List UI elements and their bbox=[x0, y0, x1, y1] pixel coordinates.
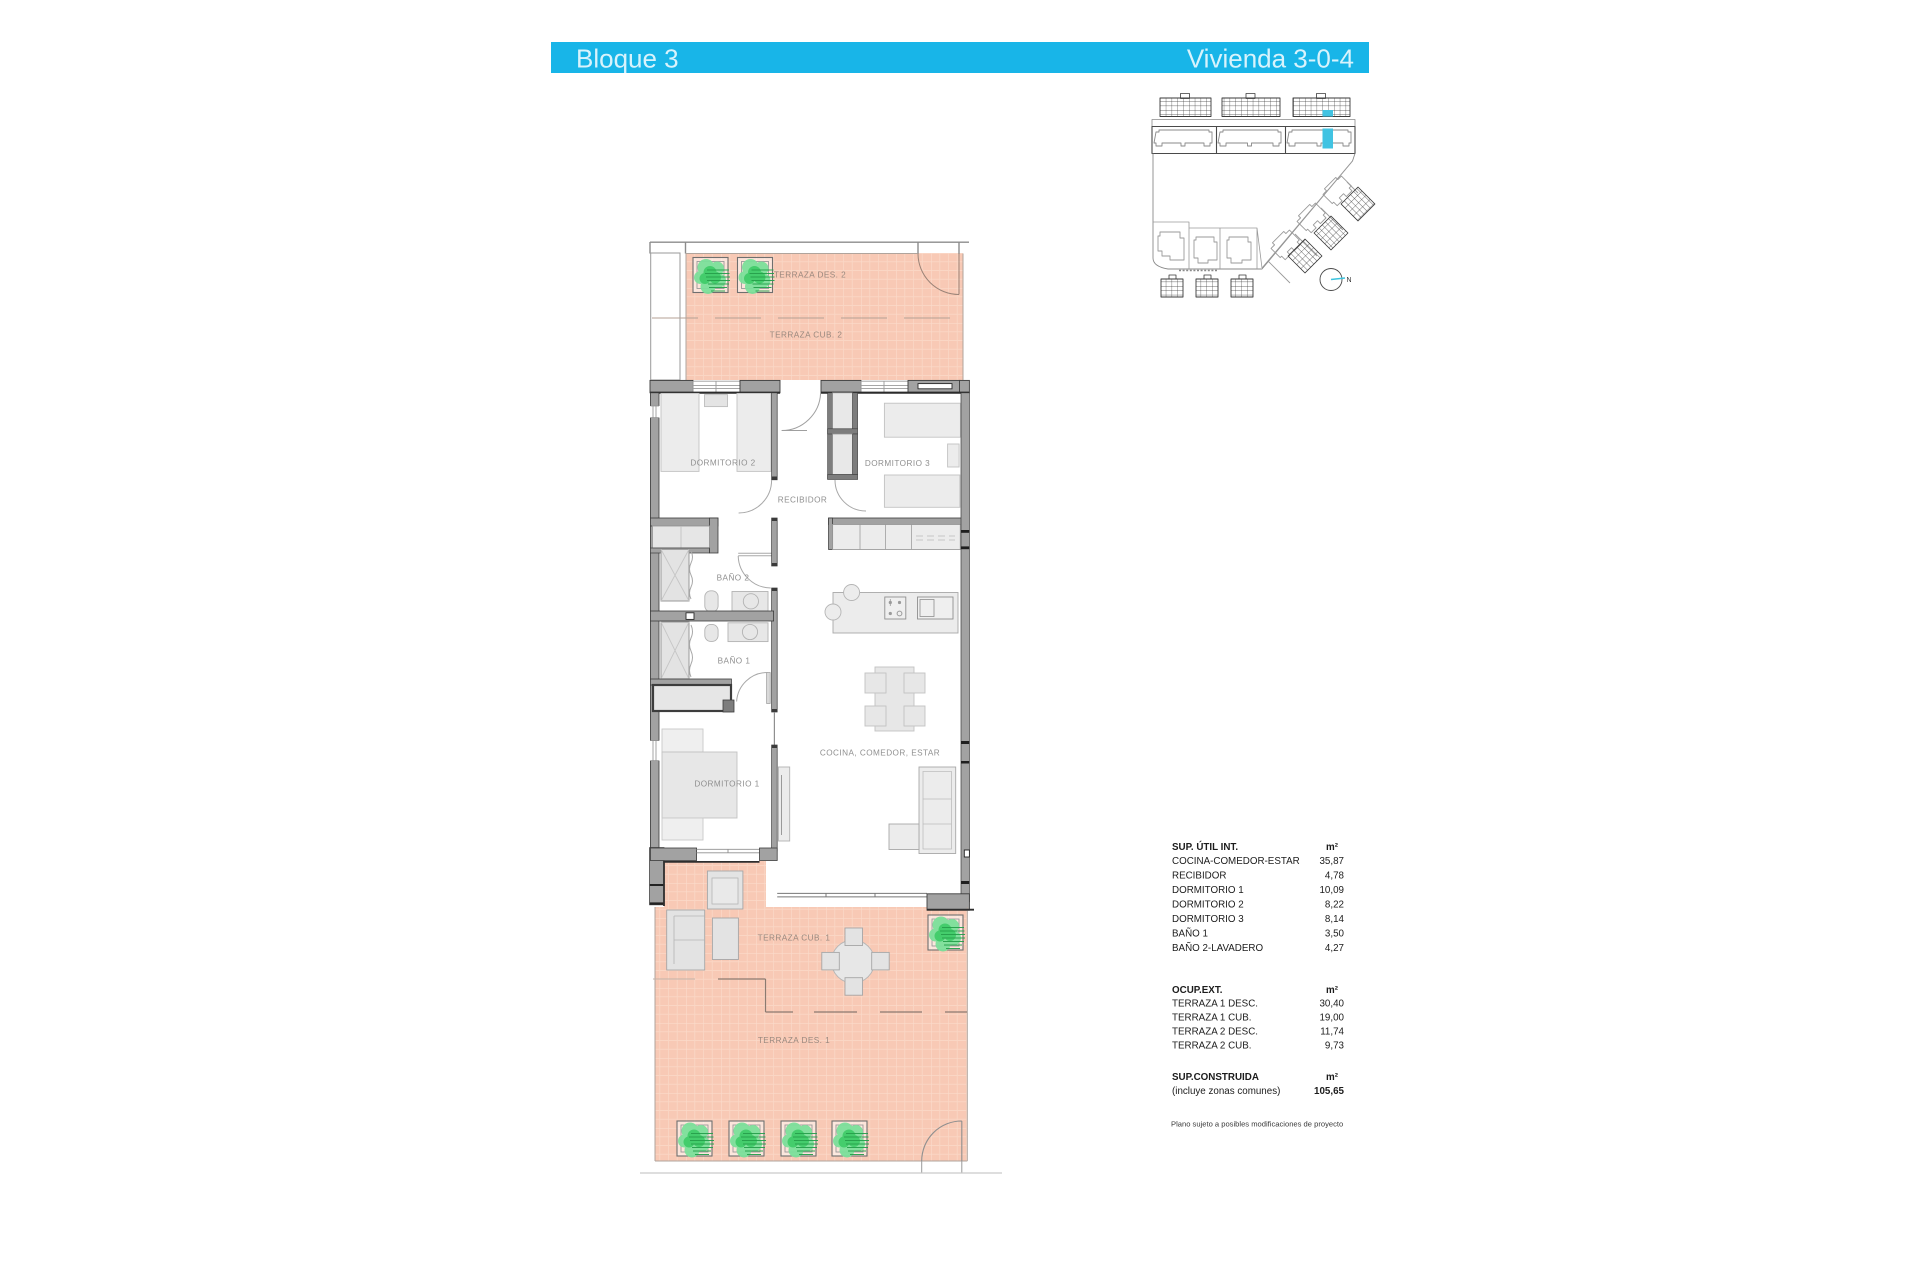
svg-text:11,74: 11,74 bbox=[1320, 1027, 1344, 1038]
svg-text:TERRAZA CUB. 1: TERRAZA CUB. 1 bbox=[758, 934, 831, 943]
svg-text:DORMITORIO 3: DORMITORIO 3 bbox=[1172, 914, 1244, 925]
svg-text:COCINA-COMEDOR-ESTAR: COCINA-COMEDOR-ESTAR bbox=[1172, 856, 1300, 867]
svg-text:BAÑO 1: BAÑO 1 bbox=[1172, 929, 1208, 940]
svg-text:N: N bbox=[1347, 277, 1352, 284]
svg-text:8,14: 8,14 bbox=[1325, 914, 1345, 925]
svg-text:Plano sujeto a posibles modifi: Plano sujeto a posibles modificaciones d… bbox=[1171, 1120, 1343, 1129]
svg-text:TERRAZA 1 CUB.: TERRAZA 1 CUB. bbox=[1172, 1013, 1251, 1024]
svg-text:OCUP.EXT.: OCUP.EXT. bbox=[1172, 985, 1223, 996]
svg-text:DORMITORIO 1: DORMITORIO 1 bbox=[694, 780, 759, 789]
svg-text:Bloque 3: Bloque 3 bbox=[576, 44, 679, 74]
svg-text:m²: m² bbox=[1326, 985, 1339, 996]
svg-text:(incluye zonas comunes): (incluye zonas comunes) bbox=[1172, 1086, 1280, 1097]
svg-text:DORMITORIO 2: DORMITORIO 2 bbox=[690, 459, 755, 468]
svg-text:TERRAZA CUB. 2: TERRAZA CUB. 2 bbox=[770, 331, 843, 340]
svg-text:m²: m² bbox=[1326, 1072, 1339, 1083]
svg-text:DORMITORIO 2: DORMITORIO 2 bbox=[1172, 900, 1244, 911]
svg-text:TERRAZA 1 DESC.: TERRAZA 1 DESC. bbox=[1172, 999, 1258, 1010]
svg-text:10,09: 10,09 bbox=[1319, 885, 1344, 896]
svg-text:35,87: 35,87 bbox=[1319, 856, 1344, 867]
svg-text:SUP. ÚTIL INT.: SUP. ÚTIL INT. bbox=[1172, 841, 1238, 853]
svg-text:TERRAZA DES. 2: TERRAZA DES. 2 bbox=[774, 271, 846, 280]
svg-text:DORMITORIO 1: DORMITORIO 1 bbox=[1172, 885, 1244, 896]
svg-text:19,00: 19,00 bbox=[1319, 1013, 1344, 1024]
svg-text:4,27: 4,27 bbox=[1325, 943, 1344, 954]
svg-text:m²: m² bbox=[1326, 842, 1339, 853]
svg-text:105,65: 105,65 bbox=[1314, 1086, 1345, 1097]
svg-text:TERRAZA 2 CUB.: TERRAZA 2 CUB. bbox=[1172, 1041, 1251, 1052]
svg-text:COCINA, COMEDOR, ESTAR: COCINA, COMEDOR, ESTAR bbox=[820, 749, 940, 758]
svg-text:RECIBIDOR: RECIBIDOR bbox=[778, 496, 828, 505]
svg-text:RECIBIDOR: RECIBIDOR bbox=[1172, 871, 1226, 882]
svg-text:9,73: 9,73 bbox=[1325, 1041, 1345, 1052]
svg-text:4,78: 4,78 bbox=[1325, 871, 1345, 882]
svg-text:3,50: 3,50 bbox=[1325, 929, 1345, 940]
svg-text:BAÑO 1: BAÑO 1 bbox=[718, 656, 751, 666]
svg-text:Vivienda 3-0-4: Vivienda 3-0-4 bbox=[1187, 44, 1354, 74]
svg-text:SUP.CONSTRUIDA: SUP.CONSTRUIDA bbox=[1172, 1072, 1259, 1083]
svg-text:TERRAZA DES. 1: TERRAZA DES. 1 bbox=[758, 1036, 830, 1045]
svg-text:8,22: 8,22 bbox=[1325, 900, 1344, 911]
svg-text:DORMITORIO 3: DORMITORIO 3 bbox=[865, 459, 930, 468]
svg-text:30,40: 30,40 bbox=[1319, 999, 1344, 1010]
svg-text:BAÑO 2-LAVADERO: BAÑO 2-LAVADERO bbox=[1172, 943, 1263, 954]
svg-text:TERRAZA 2 DESC.: TERRAZA 2 DESC. bbox=[1172, 1027, 1258, 1038]
svg-text:BAÑO 2: BAÑO 2 bbox=[717, 573, 750, 583]
